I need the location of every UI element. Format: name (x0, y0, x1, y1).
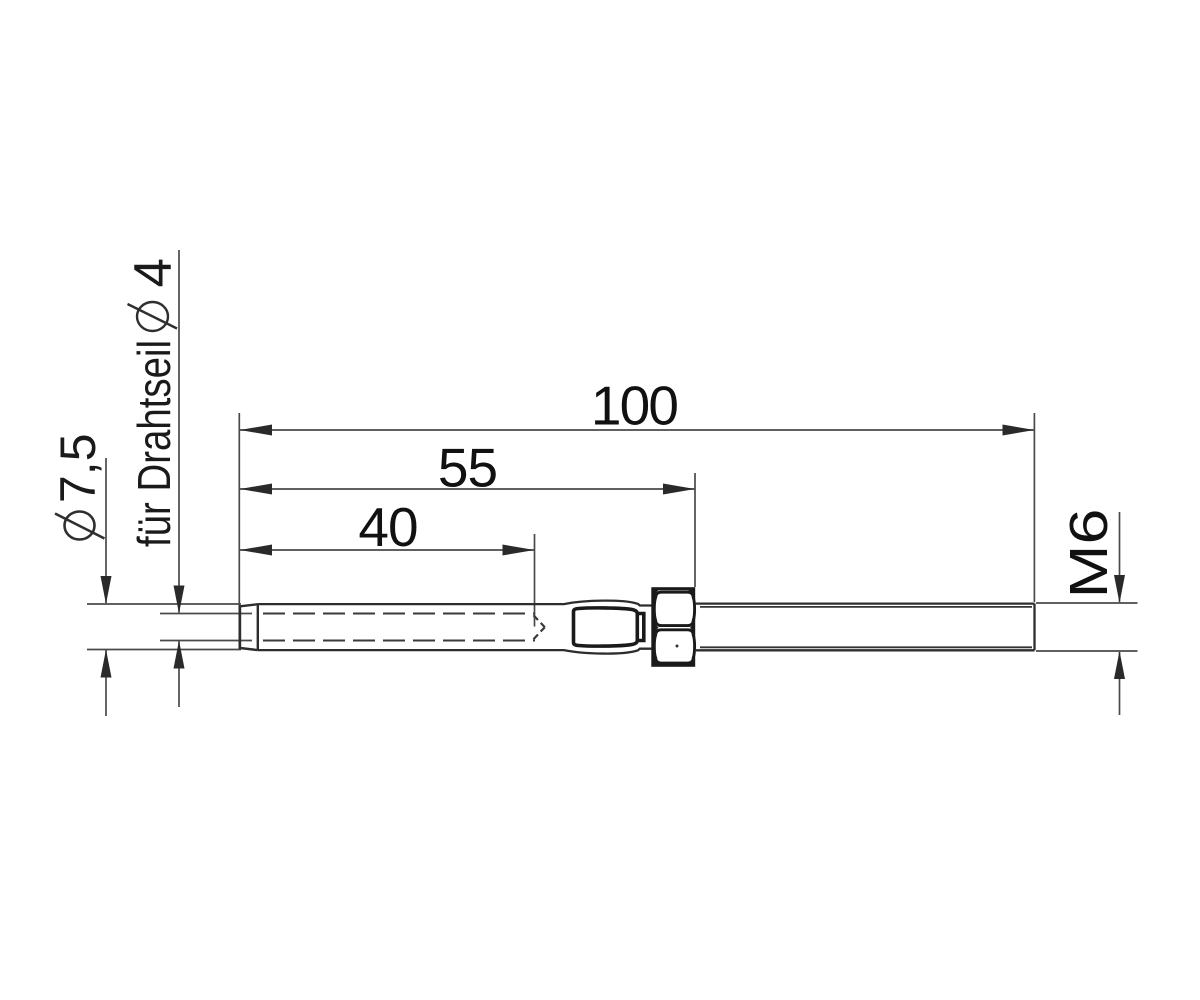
svg-text:M6: M6 (1059, 509, 1119, 599)
svg-text:7,5: 7,5 (50, 433, 106, 503)
svg-text:100: 100 (591, 375, 678, 437)
svg-text:40: 40 (358, 496, 417, 558)
svg-text:4: 4 (124, 258, 183, 287)
svg-text:für Drahtseil: für Drahtseil (128, 340, 180, 547)
